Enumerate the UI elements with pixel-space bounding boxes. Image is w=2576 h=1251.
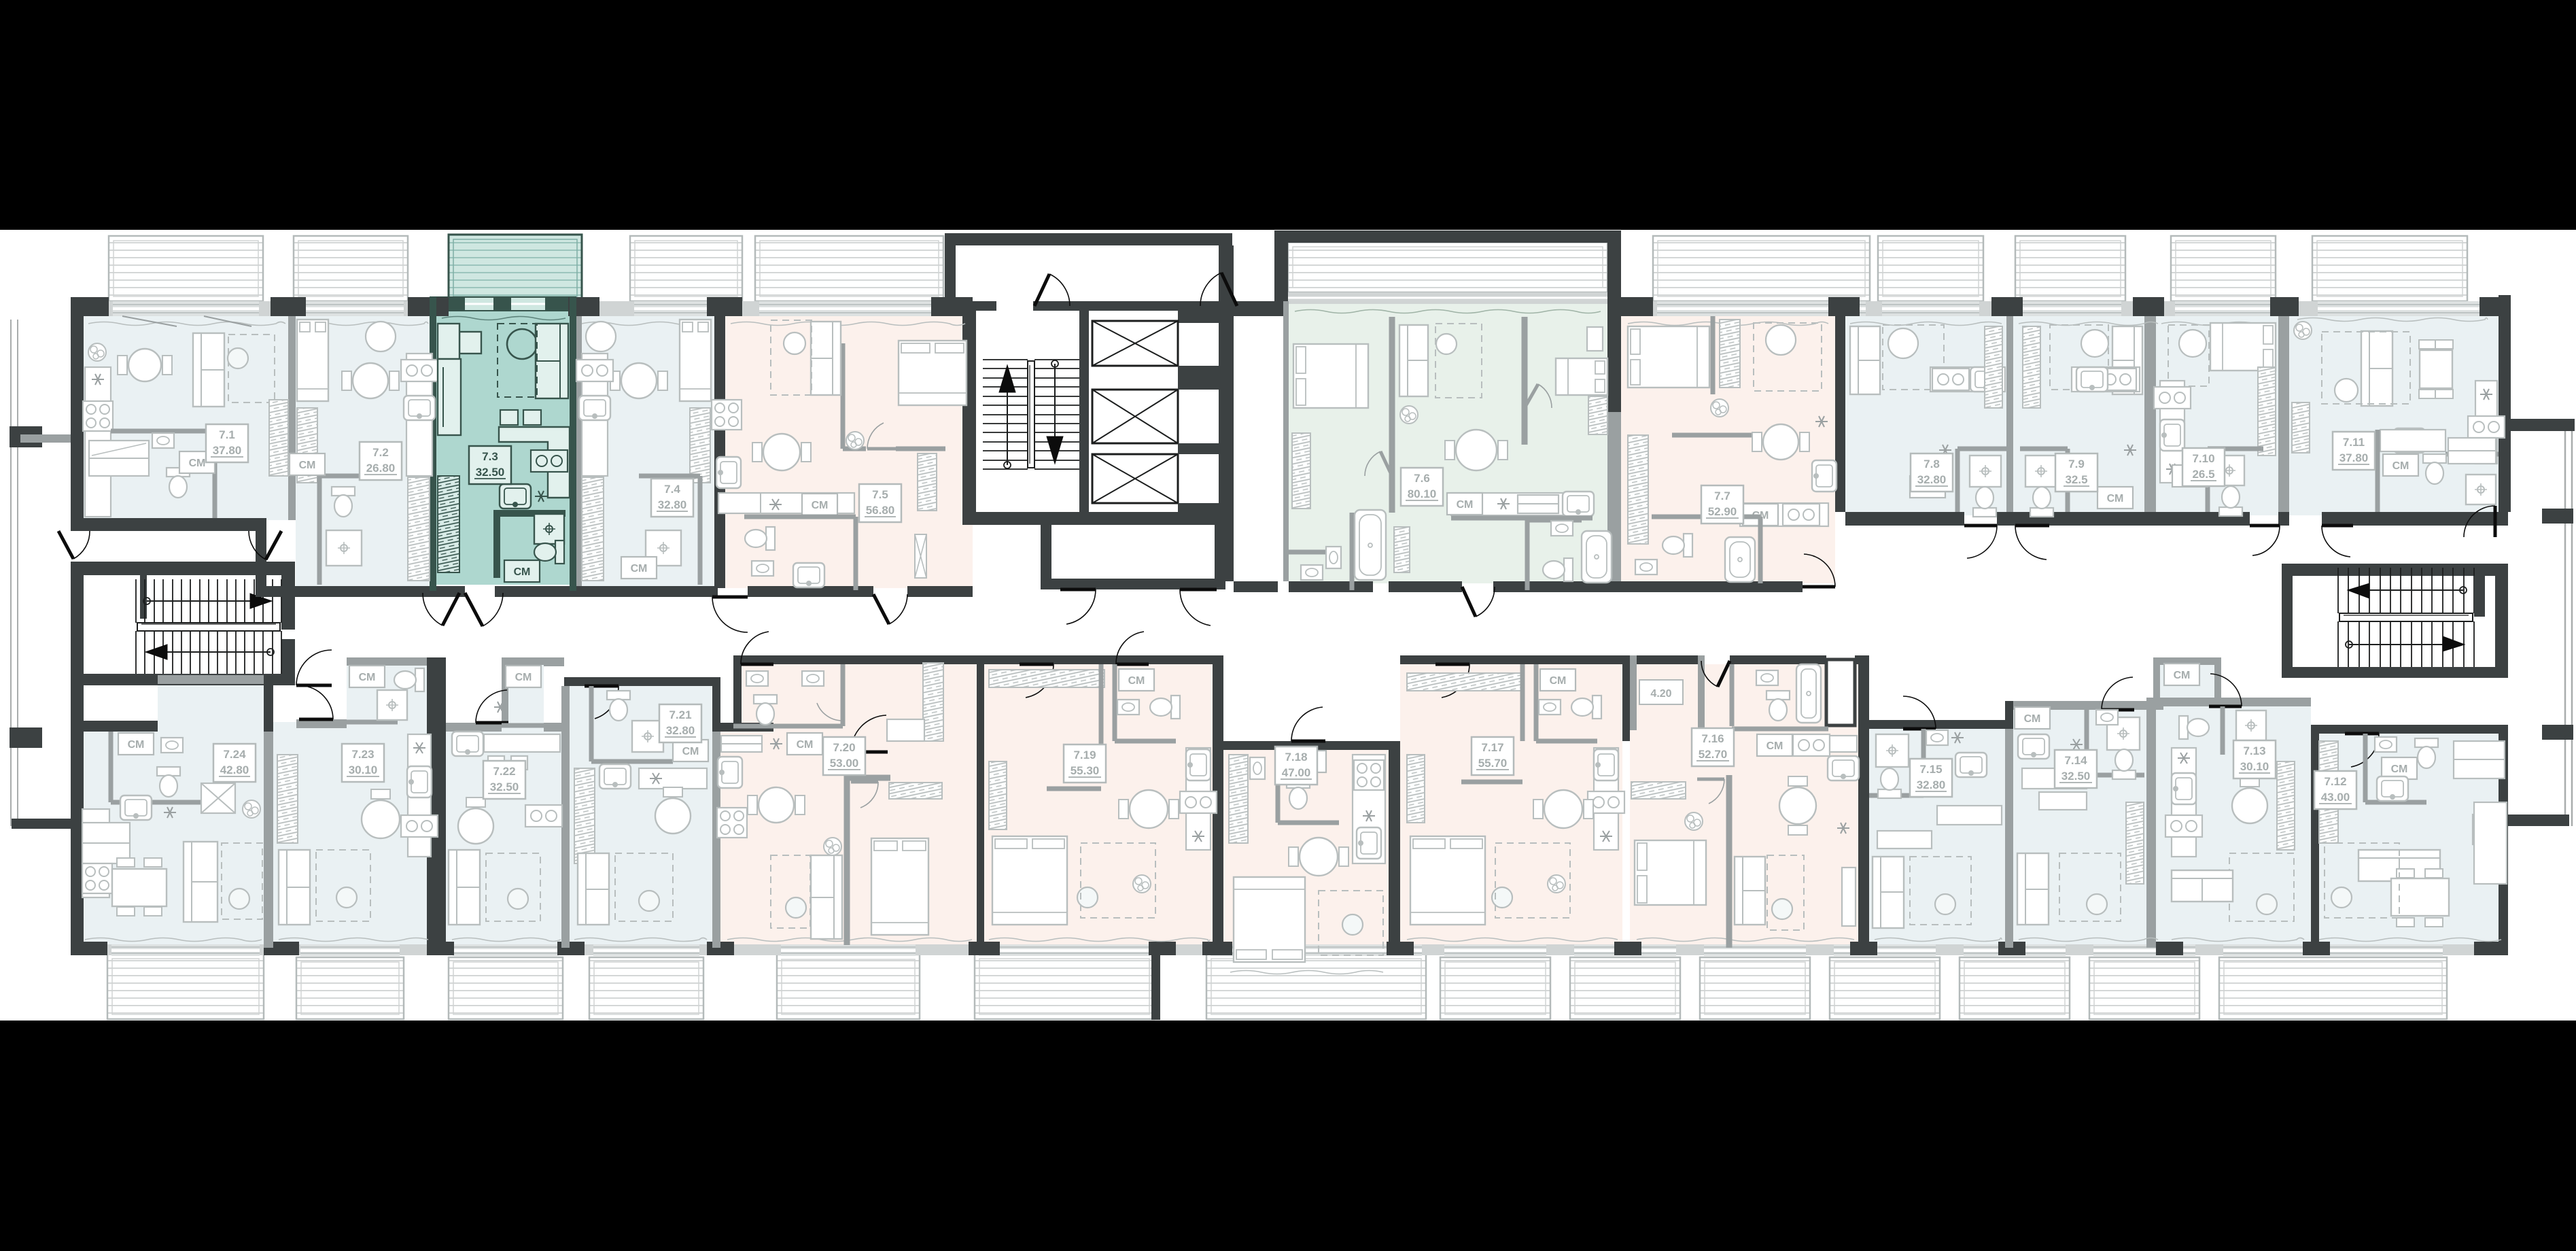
svg-text:37.80: 37.80 xyxy=(213,444,242,457)
svg-text:56.80: 56.80 xyxy=(866,504,895,517)
svg-text:55.70: 55.70 xyxy=(1478,757,1508,770)
svg-text:7.13: 7.13 xyxy=(2243,744,2265,757)
svg-text:СМ: СМ xyxy=(1766,740,1783,752)
svg-text:7.19: 7.19 xyxy=(1073,749,1096,761)
svg-text:32.50: 32.50 xyxy=(490,781,519,793)
svg-text:55.30: 55.30 xyxy=(1071,764,1100,777)
svg-text:7.16: 7.16 xyxy=(1701,732,1724,745)
svg-text:7.3: 7.3 xyxy=(482,450,498,463)
svg-text:52.90: 52.90 xyxy=(1708,505,1737,518)
svg-text:80.10: 80.10 xyxy=(1408,487,1437,500)
svg-text:32.80: 32.80 xyxy=(666,724,695,737)
svg-text:7.11: 7.11 xyxy=(2343,436,2365,449)
svg-text:32.80: 32.80 xyxy=(1917,778,1946,791)
svg-text:СМ: СМ xyxy=(514,566,531,578)
svg-text:43.00: 43.00 xyxy=(2321,791,2350,804)
svg-text:7.7: 7.7 xyxy=(1714,490,1730,502)
svg-text:СМ: СМ xyxy=(1457,499,1474,511)
svg-text:52.70: 52.70 xyxy=(1699,748,1728,761)
svg-text:32.50: 32.50 xyxy=(2061,770,2091,783)
svg-text:4.20: 4.20 xyxy=(1650,688,1671,700)
svg-text:7.10: 7.10 xyxy=(2192,452,2214,465)
svg-text:26.5: 26.5 xyxy=(2192,468,2214,481)
svg-text:32.80: 32.80 xyxy=(658,498,687,511)
svg-text:СМ: СМ xyxy=(2392,460,2409,472)
svg-text:7.9: 7.9 xyxy=(2068,458,2085,470)
svg-text:СМ: СМ xyxy=(299,460,316,471)
svg-text:СМ: СМ xyxy=(1550,675,1567,687)
svg-text:7.2: 7.2 xyxy=(372,446,389,459)
svg-text:СМ: СМ xyxy=(2107,493,2124,504)
svg-text:СМ: СМ xyxy=(189,458,206,469)
svg-text:СМ: СМ xyxy=(2024,713,2041,725)
svg-text:32.5: 32.5 xyxy=(2065,473,2087,486)
svg-text:53.00: 53.00 xyxy=(830,757,859,770)
svg-text:СМ: СМ xyxy=(515,672,532,683)
svg-text:7.8: 7.8 xyxy=(1924,458,1940,470)
svg-text:30.10: 30.10 xyxy=(349,764,378,776)
svg-text:СМ: СМ xyxy=(2174,670,2191,681)
svg-text:СМ: СМ xyxy=(631,563,648,575)
svg-text:32.80: 32.80 xyxy=(1917,473,1947,486)
svg-text:СМ: СМ xyxy=(797,739,814,751)
svg-text:СМ: СМ xyxy=(128,739,145,751)
svg-text:7.23: 7.23 xyxy=(351,748,374,761)
svg-text:СМ: СМ xyxy=(1128,675,1145,687)
svg-text:СМ: СМ xyxy=(359,672,376,683)
svg-text:7.1: 7.1 xyxy=(219,428,235,441)
svg-text:7.17: 7.17 xyxy=(1481,741,1503,754)
svg-text:7.18: 7.18 xyxy=(1285,751,1307,764)
svg-text:7.15: 7.15 xyxy=(1919,763,1942,776)
svg-text:26.80: 26.80 xyxy=(366,462,396,475)
svg-text:37.80: 37.80 xyxy=(2339,451,2369,464)
svg-text:СМ: СМ xyxy=(682,746,699,757)
svg-text:СМ: СМ xyxy=(2391,764,2408,775)
svg-text:7.22: 7.22 xyxy=(493,765,515,778)
svg-text:7.4: 7.4 xyxy=(664,483,680,496)
svg-text:7.12: 7.12 xyxy=(2324,775,2346,788)
svg-text:7.14: 7.14 xyxy=(2064,754,2087,767)
svg-text:7.6: 7.6 xyxy=(1414,472,1430,485)
svg-text:32.50: 32.50 xyxy=(476,466,505,479)
svg-text:7.5: 7.5 xyxy=(872,488,888,501)
svg-text:7.20: 7.20 xyxy=(833,741,855,754)
svg-text:7.21: 7.21 xyxy=(669,708,691,721)
svg-text:СМ: СМ xyxy=(812,500,829,511)
svg-text:7.24: 7.24 xyxy=(223,748,246,761)
svg-text:42.80: 42.80 xyxy=(220,764,249,776)
svg-text:47.00: 47.00 xyxy=(1282,766,1311,779)
svg-text:30.10: 30.10 xyxy=(2240,760,2269,773)
